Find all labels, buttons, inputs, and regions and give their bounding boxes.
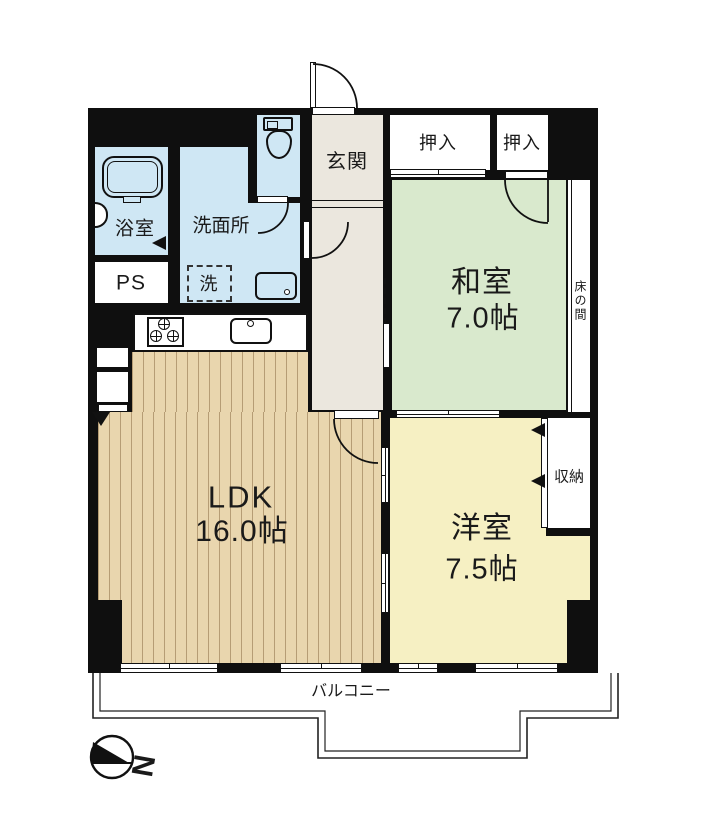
entry-step-line [312,200,383,208]
meter-box-upper [97,348,128,367]
entrance-door-open-panel [310,62,316,108]
window-western-1 [398,663,438,673]
label-tokonoma: 床の間 [574,280,586,322]
washroom-door-panel [303,221,310,259]
bathtub [102,156,163,198]
toilet-tank [263,117,293,131]
label-washitsu-size: 7.0帖 [446,305,519,334]
closet-a-sliding-door [390,169,486,178]
stove-burner-1 [150,330,162,342]
kitchen-faucet [247,320,254,327]
compass-needle [91,742,129,763]
washitsu-western-sliding-door [396,410,500,418]
washitsu-door-panel [505,171,548,179]
label-genkan: 玄関 [326,152,368,172]
label-yoshitsu: 洋室 [451,514,513,544]
label-laundry: 洗 [200,275,219,293]
storage-bottom-wall [546,528,590,536]
washroom-drain [284,289,290,295]
hall-washitsu-sliding-pocket [384,278,386,324]
stove-burner-3 [158,318,170,330]
label-oshiire-b: 押入 [503,134,541,152]
hall-ldk-door-panel [334,410,379,419]
meter-box-door [98,404,128,412]
label-shuno: 収納 [554,470,584,485]
label-senmenjo: 洗面所 [192,217,249,236]
label-ldk: LDK [208,482,274,513]
hall-washitsu-sliding-panel [383,323,390,368]
window-western-2 [475,663,558,673]
ldk-western-sliding-door-2 [381,553,389,613]
floor-plan: 玄関 押入 押入 和室 7.0帖 床の間 収納 洋室 7.5帖 LDK 16.0… [0,0,708,835]
label-balcony: バルコニー [311,684,391,700]
label-ps: PS [116,273,146,294]
ldk-floor-top [132,352,308,412]
window-ldk-1 [120,663,218,673]
pillar-bottom-right [567,600,590,663]
pillar-bottom-left [88,600,122,663]
compass-north-label: N [125,752,158,780]
label-ldk-size: 16.0帖 [195,517,288,547]
washroom-basin [255,272,297,300]
ldk-western-sliding-door-1 [381,447,389,503]
window-ldk-2 [280,663,362,673]
toilet-door-panel [257,196,288,203]
meter-box-lower [97,372,128,402]
entrance-door-panel [312,107,355,115]
label-yoshitsu-size: 7.5帖 [445,556,518,585]
label-bath: 浴室 [115,220,155,239]
label-oshiire-a: 押入 [419,134,457,152]
stove-burner-2 [167,330,179,342]
tokonoma-line [571,180,572,412]
storage-door-panel [541,418,548,528]
label-washitsu: 和室 [451,268,513,298]
bathtub-step [123,196,141,203]
entrance-door-arc [313,64,357,108]
